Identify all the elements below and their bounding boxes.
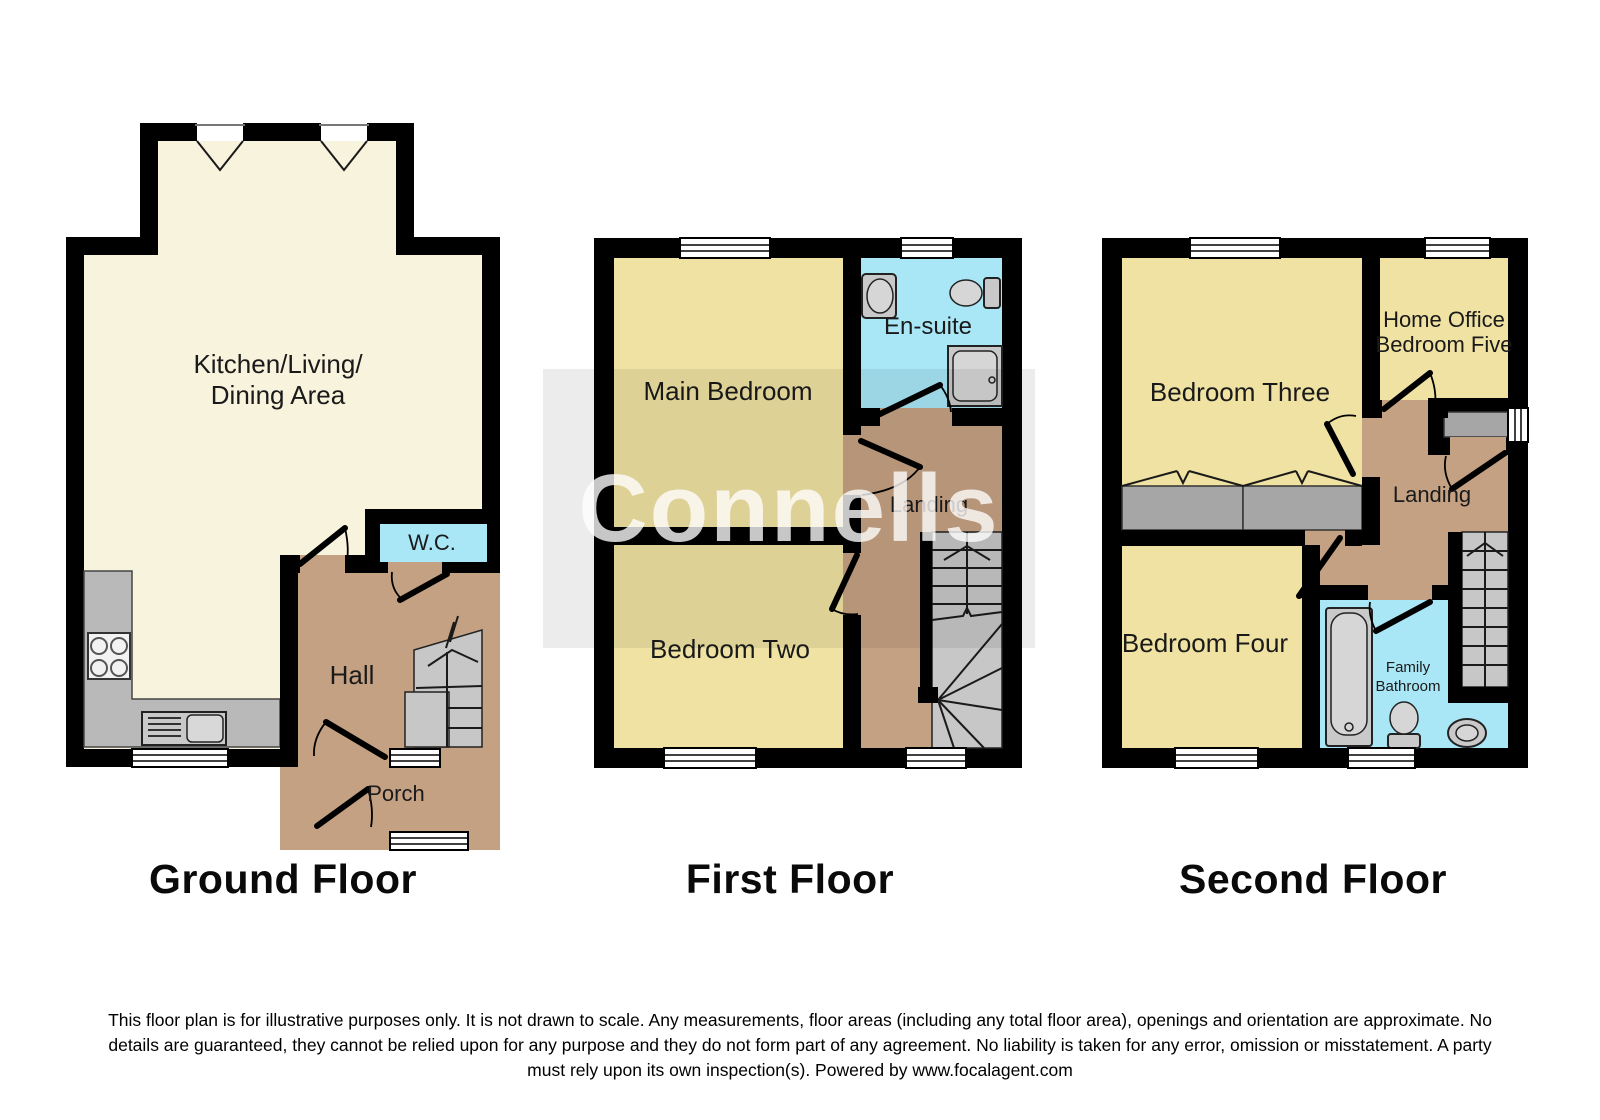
disclaimer-line2: details are guaranteed, they cannot be r… — [0, 1033, 1600, 1058]
first-floor-plan: Main Bedroom En-suite Landing Bedroom Tw… — [594, 238, 1022, 768]
floorplan-page: Kitchen/Living/ Dining Area W.C. Hall Po… — [0, 0, 1600, 1120]
floorplan-canvas: Kitchen/Living/ Dining Area W.C. Hall Po… — [0, 0, 1600, 1120]
disclaimer: This floor plan is for illustrative purp… — [0, 1008, 1600, 1083]
room-label-landing-second: Landing — [1393, 482, 1471, 507]
toilet-icon — [950, 278, 1000, 308]
disclaimer-line3: must rely upon its own inspection(s). Po… — [0, 1058, 1600, 1083]
second-floor-title: Second Floor — [1163, 856, 1463, 903]
room-label-kitchen-line1: Kitchen/Living/ — [193, 349, 363, 379]
second-floor-stairs — [1462, 532, 1508, 687]
room-label-bedroom-three: Bedroom Three — [1150, 377, 1330, 407]
room-label-landing-first: Landing — [890, 492, 968, 517]
room-label-home-office-line2: Bedroom Five — [1376, 332, 1513, 357]
room-label-hall: Hall — [330, 660, 375, 690]
bath-icon — [1326, 608, 1372, 746]
room-label-main-bedroom: Main Bedroom — [643, 376, 812, 406]
ground-floor-plan: Kitchen/Living/ Dining Area W.C. Hall Po… — [66, 123, 500, 850]
room-label-porch: Porch — [367, 781, 424, 806]
room-label-ensuite: En-suite — [884, 313, 972, 340]
first-floor-title: First Floor — [640, 856, 940, 903]
room-label-wc: W.C. — [408, 530, 456, 555]
room-label-family-bathroom-line2: Bathroom — [1375, 678, 1440, 695]
room-label-family-bathroom-line1: Family — [1386, 659, 1431, 676]
first-floor-stairs — [932, 532, 1002, 748]
ground-floor-title: Ground Floor — [133, 856, 433, 903]
basin-icon — [862, 274, 896, 318]
hob-icon — [88, 633, 130, 679]
toilet-icon — [1388, 702, 1420, 748]
disclaimer-line1: This floor plan is for illustrative purp… — [0, 1008, 1600, 1033]
basin-icon — [1448, 719, 1486, 747]
room-label-bedroom-two: Bedroom Two — [650, 634, 810, 664]
room-label-kitchen-line2: Dining Area — [211, 380, 346, 410]
room-label-bedroom-four: Bedroom Four — [1122, 628, 1289, 658]
shower-icon — [948, 346, 1002, 406]
room-label-home-office-line1: Home Office — [1383, 307, 1505, 332]
sink-icon — [142, 712, 226, 745]
second-floor-plan: Bedroom Three Home Office Bedroom Five L… — [1102, 238, 1528, 768]
